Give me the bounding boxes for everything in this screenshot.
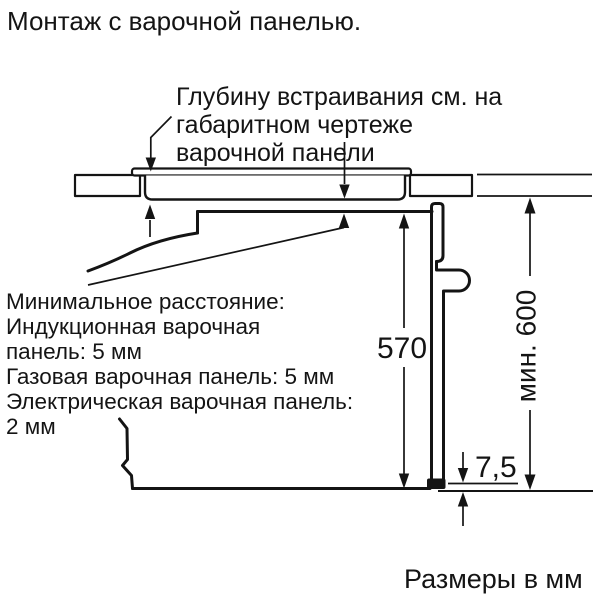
rear-rail-foot <box>427 479 446 490</box>
dim-570-label: 570 <box>377 332 427 365</box>
dim-7-5: 7,5 <box>438 451 593 526</box>
left-note-line-3: панель: 5 мм <box>6 339 142 364</box>
installation-diagram: Монтаж с варочной панелью. Глубину встра… <box>0 0 600 600</box>
countertop-right-section <box>410 175 472 196</box>
arrow-down-icon <box>525 475 536 491</box>
oven-front-break-line <box>88 233 198 271</box>
left-note-line-2: Индукционная варочная <box>6 314 260 339</box>
left-note-line-1: Минимальное расстояние: <box>6 289 285 314</box>
oven-bottom-break-line <box>120 419 133 489</box>
rear-rail <box>432 204 444 481</box>
top-note-line-2: габаритном чертеже <box>176 111 413 139</box>
dim-min-600: мин. 600 <box>477 175 592 491</box>
rear-rail-knob <box>437 262 470 481</box>
arrow-up-icon <box>525 198 536 214</box>
arrow-up-icon <box>399 214 409 229</box>
left-note: Минимальное расстояние: Индукционная вар… <box>6 289 353 439</box>
arrow-up-icon <box>458 492 468 507</box>
top-note-line-1: Глубину встраивания см. на <box>176 83 502 111</box>
left-note-line-5: Электрическая варочная панель: <box>6 389 353 414</box>
hob-tub <box>145 176 405 200</box>
units-note: Размеры в мм <box>404 564 583 594</box>
dim-570: 570 <box>377 214 427 489</box>
left-note-line-4: Газовая варочная панель: 5 мм <box>6 364 334 389</box>
dim-min-600-label: мин. 600 <box>511 290 542 403</box>
countertop-left-section <box>75 175 140 196</box>
arrow-up-icon <box>339 214 349 229</box>
installation-drawing-page: Монтаж с варочной панелью. Глубину встра… <box>0 0 600 600</box>
hob-flange <box>132 169 411 176</box>
page-title: Монтаж с варочной панелью. <box>7 6 361 36</box>
left-note-line-6: 2 мм <box>6 414 56 439</box>
dim-7-5-label: 7,5 <box>475 451 517 484</box>
arrow-down-icon <box>458 468 468 483</box>
top-note: Глубину встраивания см. на габаритном че… <box>176 83 502 167</box>
arrow-down-icon <box>399 474 409 489</box>
top-note-leader-line <box>151 117 172 159</box>
arrow-up-icon <box>145 205 155 220</box>
